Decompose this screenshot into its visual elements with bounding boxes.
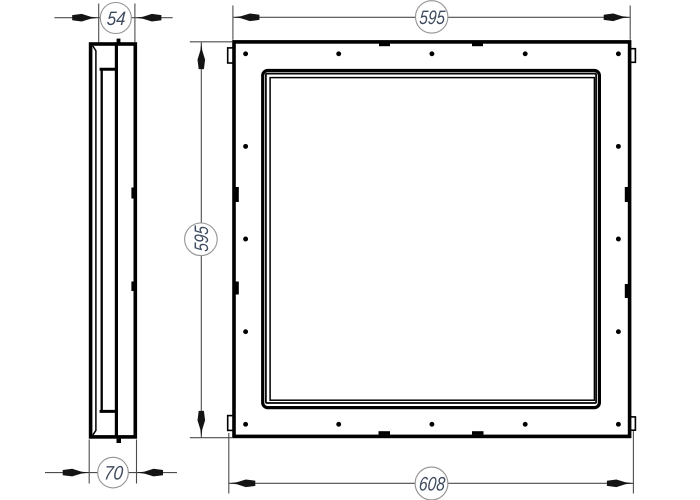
svg-text:70: 70 [103,463,124,485]
svg-text:595: 595 [419,7,447,29]
svg-text:54: 54 [106,8,127,30]
svg-text:595: 595 [191,225,213,253]
svg-text:608: 608 [418,474,446,496]
